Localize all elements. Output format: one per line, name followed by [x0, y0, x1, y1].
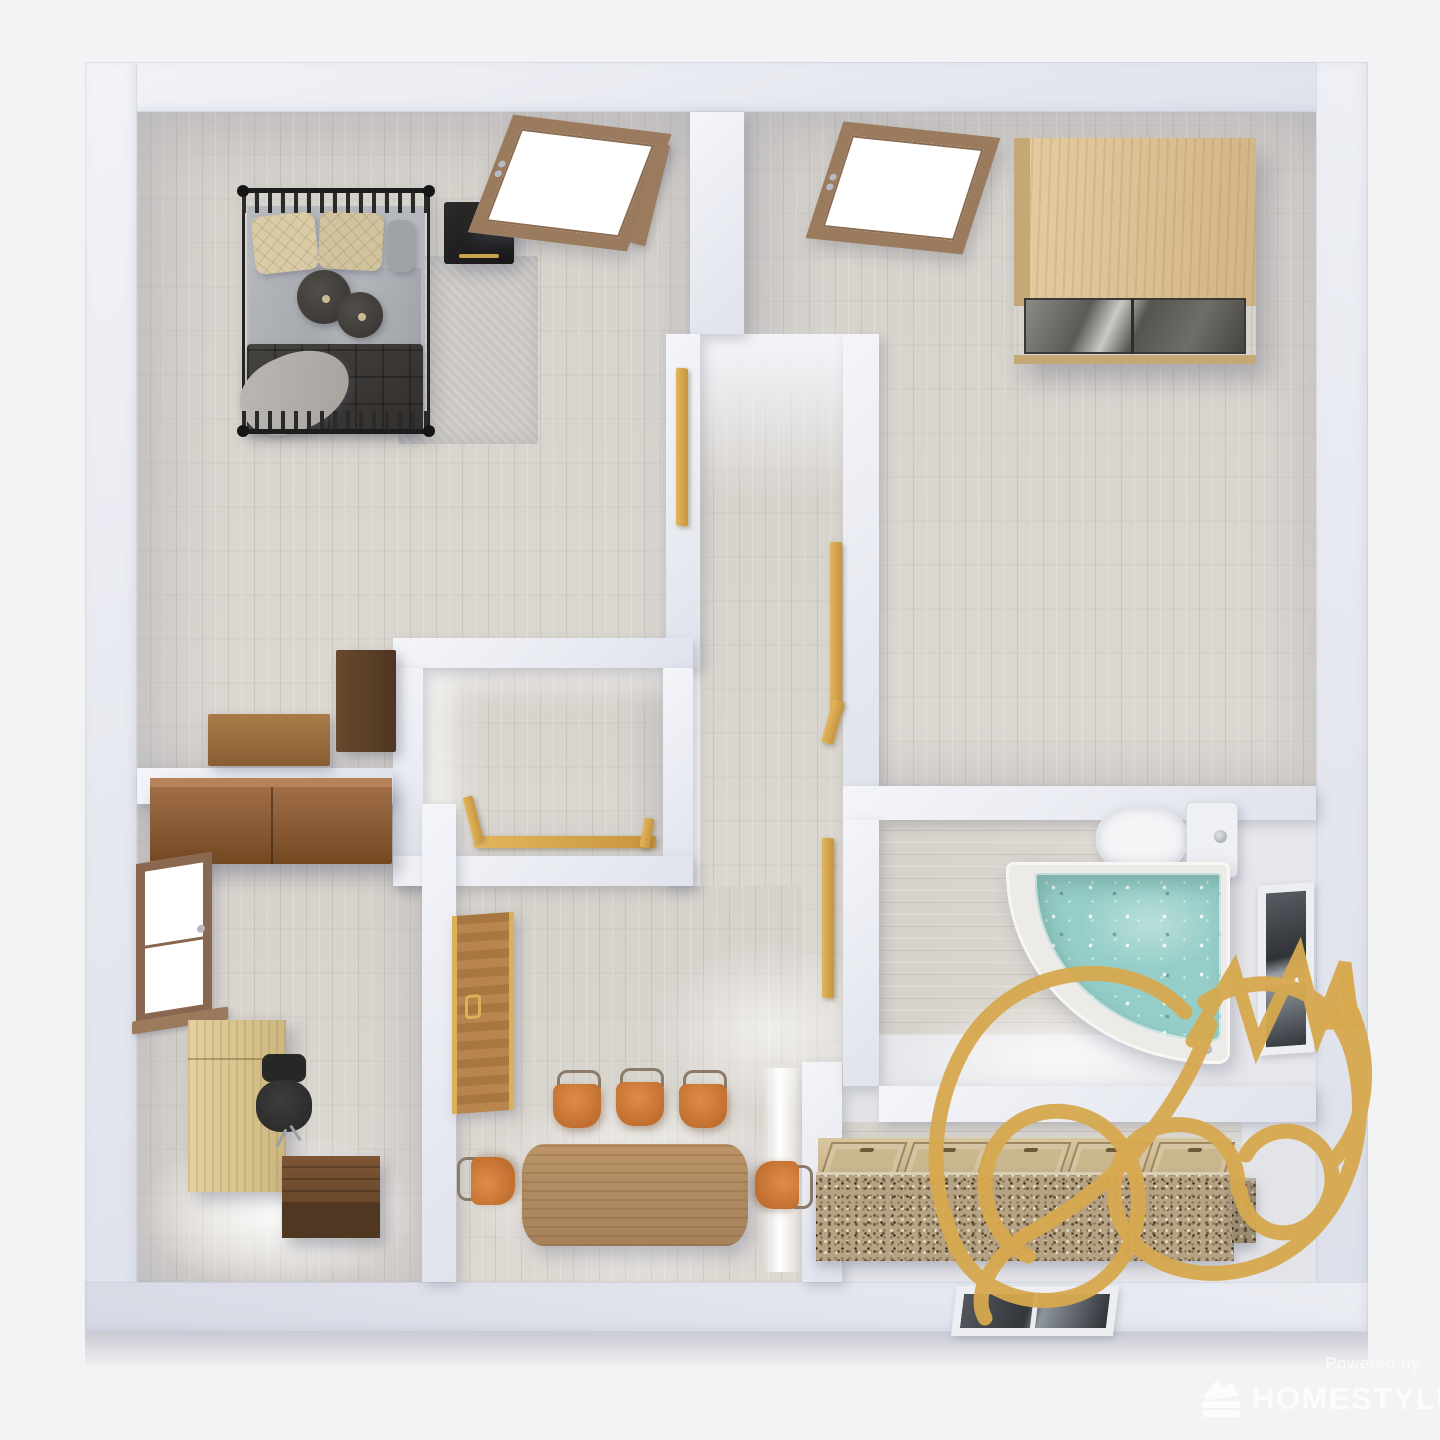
dining-chair-right: [751, 1159, 813, 1211]
stair-handrail-left: [676, 367, 688, 526]
dining-table: [522, 1144, 748, 1246]
kitchen-window: [951, 1286, 1119, 1336]
stair-ceiling-plane: [700, 334, 843, 499]
homestyler-fan-icon: [1198, 1378, 1244, 1420]
outer-wall-top: [85, 62, 1368, 112]
wall-office-dining-divider: [422, 804, 456, 1282]
wall-bathroom-bottom: [879, 1086, 1316, 1122]
office-wall-cabinet: [150, 778, 392, 864]
homestyler-wordmark: HOMESTYLER: [1252, 1381, 1440, 1417]
wardrobe-base-lip: [1014, 355, 1256, 364]
double-bed: [242, 188, 430, 434]
dining-chair-3: [677, 1070, 729, 1132]
office-chair-back: [262, 1054, 306, 1082]
bed-pillow-right: [318, 210, 385, 271]
outer-wall-left: [85, 62, 137, 1332]
wardrobe-glass-front: [1024, 298, 1246, 354]
office-window: [136, 852, 212, 1024]
outer-wall-bottom: [85, 1282, 1368, 1332]
window-divider: [1030, 1294, 1039, 1328]
walnut-bench: [282, 1156, 380, 1238]
bed-knob: [423, 425, 435, 437]
dining-chair-1: [551, 1070, 603, 1132]
outer-wall-right: [1316, 62, 1368, 1332]
chair-seat: [471, 1157, 515, 1205]
tub-faucet: [1202, 1044, 1212, 1054]
dining-chair-left: [457, 1155, 519, 1207]
floorplan-stage: Powered by HOMESTYLER: [0, 0, 1440, 1440]
wardrobe-top-face: [1014, 138, 1256, 306]
oak-wardrobe: [1014, 138, 1256, 364]
bed-pillow-gray: [387, 220, 415, 272]
bed-pillow-left: [250, 211, 320, 275]
wall-stairwell-top: [393, 638, 693, 668]
chair-seat: [755, 1161, 799, 1209]
stairwell-railing: [474, 836, 656, 848]
dining-wood-door: [452, 912, 514, 1114]
granite-counter: [816, 1172, 1234, 1261]
wardrobe-side-edge: [1014, 138, 1030, 306]
door-handle: [828, 173, 837, 181]
wall-bathroom-left: [843, 820, 879, 1086]
homestyler-logo: HOMESTYLER: [1198, 1378, 1440, 1420]
granite-counter-end: [1232, 1178, 1256, 1243]
bathroom-window: [1258, 882, 1314, 1056]
dining-chair-2: [614, 1068, 666, 1130]
wall-hallway-right: [843, 334, 879, 786]
window-divider: [1266, 977, 1306, 986]
bed-knob: [423, 185, 435, 197]
plan-ground-shadow: [85, 1332, 1368, 1368]
office-chair-seat: [256, 1080, 312, 1132]
door-handle: [497, 160, 507, 168]
storage-chest: [208, 714, 330, 766]
stair-handrail-right-upper: [830, 542, 842, 711]
wall-bedroom-closet-divider: [690, 112, 744, 334]
bed-knob: [237, 425, 249, 437]
chair-seat: [553, 1084, 601, 1128]
bed-footboard: [242, 411, 430, 434]
chair-seat: [616, 1082, 664, 1126]
stair-handrail-right-lower: [822, 838, 834, 999]
stairwell-floor: [423, 668, 663, 856]
office-chair: [250, 1054, 322, 1150]
round-cushion-small: [337, 292, 383, 338]
chair-seat: [679, 1084, 727, 1128]
bed-knob: [237, 185, 249, 197]
powered-by-label: Powered by: [1240, 1354, 1420, 1374]
bed-headboard: [242, 188, 430, 213]
wall-bathroom-top: [843, 786, 1316, 820]
wall-stairwell-left: [393, 668, 423, 886]
wall-stairwell-right: [663, 668, 693, 886]
toilet-flush-button: [1214, 830, 1227, 843]
dark-side-table: [336, 650, 396, 752]
